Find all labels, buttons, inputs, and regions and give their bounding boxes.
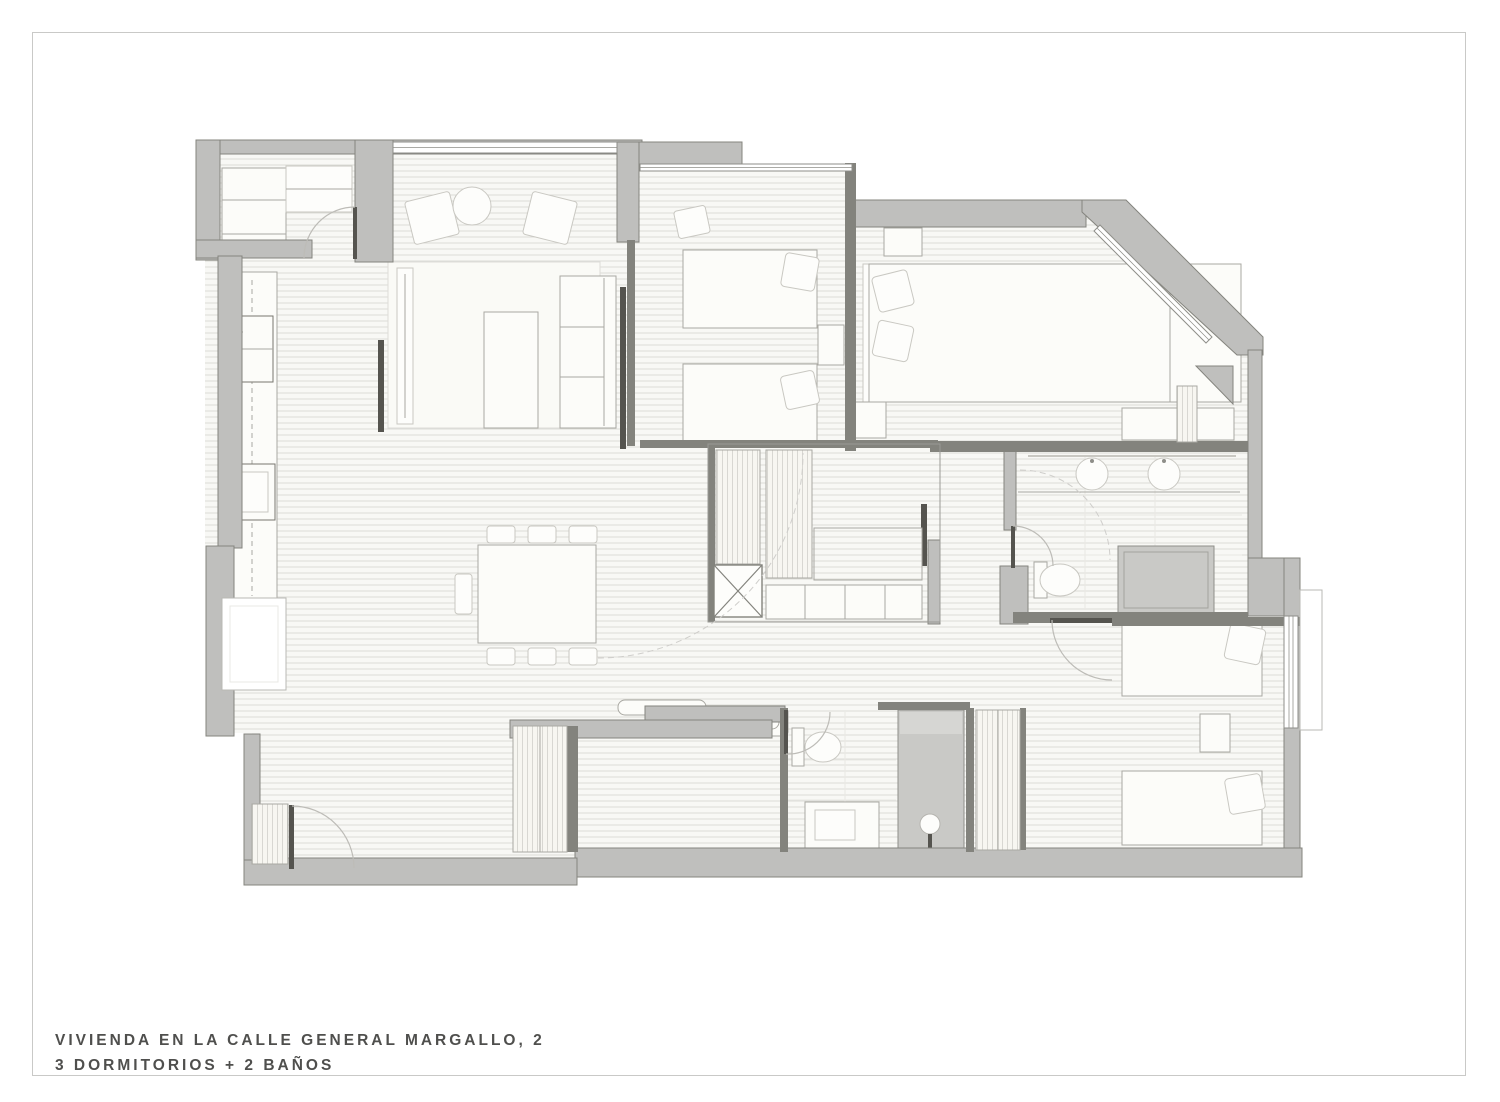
wardrobe: [716, 450, 760, 564]
sliding-door: [620, 287, 626, 449]
chair: [528, 526, 556, 543]
window: [1284, 616, 1298, 728]
shelving: [814, 528, 922, 580]
door-leaf: [353, 207, 357, 259]
sofa: [560, 276, 616, 428]
floor-plan-drawing: [0, 0, 1500, 1102]
shower-drain: [920, 814, 940, 834]
side-table: [453, 187, 491, 225]
pillow: [1224, 773, 1266, 815]
door-leaf: [1050, 618, 1112, 623]
pillow: [780, 252, 819, 291]
pillow: [780, 370, 820, 410]
chair: [569, 648, 597, 665]
nightstand: [1200, 714, 1230, 752]
chair: [528, 648, 556, 665]
balcony: [1300, 590, 1322, 730]
lightwell: [222, 598, 286, 690]
wardrobe: [766, 450, 812, 578]
plan-subtitle: 3 DORMITORIOS + 2 BAÑOS: [55, 1053, 545, 1078]
plan-title: VIVIENDA EN LA CALLE GENERAL MARGALLO, 2: [55, 1028, 545, 1053]
door-leaf: [784, 710, 788, 754]
title-block: VIVIENDA EN LA CALLE GENERAL MARGALLO, 2…: [55, 1028, 545, 1078]
shower: [1118, 546, 1214, 614]
nightstand: [884, 228, 922, 256]
chair: [673, 205, 710, 239]
sliding-door: [378, 340, 384, 432]
coat-closet: [252, 804, 288, 864]
drawer-bench: [766, 585, 922, 619]
entry-door-leaf: [289, 805, 294, 869]
chair: [487, 648, 515, 665]
chair: [455, 574, 472, 614]
coffee-table: [484, 312, 538, 428]
nightstand: [818, 325, 844, 365]
floor-plan-sheet: VIVIENDA EN LA CALLE GENERAL MARGALLO, 2…: [0, 0, 1500, 1102]
pillow: [872, 320, 915, 363]
chair: [569, 526, 597, 543]
closet: [1177, 386, 1197, 442]
door-leaf: [1011, 526, 1015, 568]
chair: [487, 526, 515, 543]
headboard: [863, 264, 869, 402]
pillow: [1224, 623, 1267, 666]
toilet-tank: [792, 728, 804, 766]
dining-table: [478, 545, 596, 643]
toilet: [1040, 564, 1080, 596]
